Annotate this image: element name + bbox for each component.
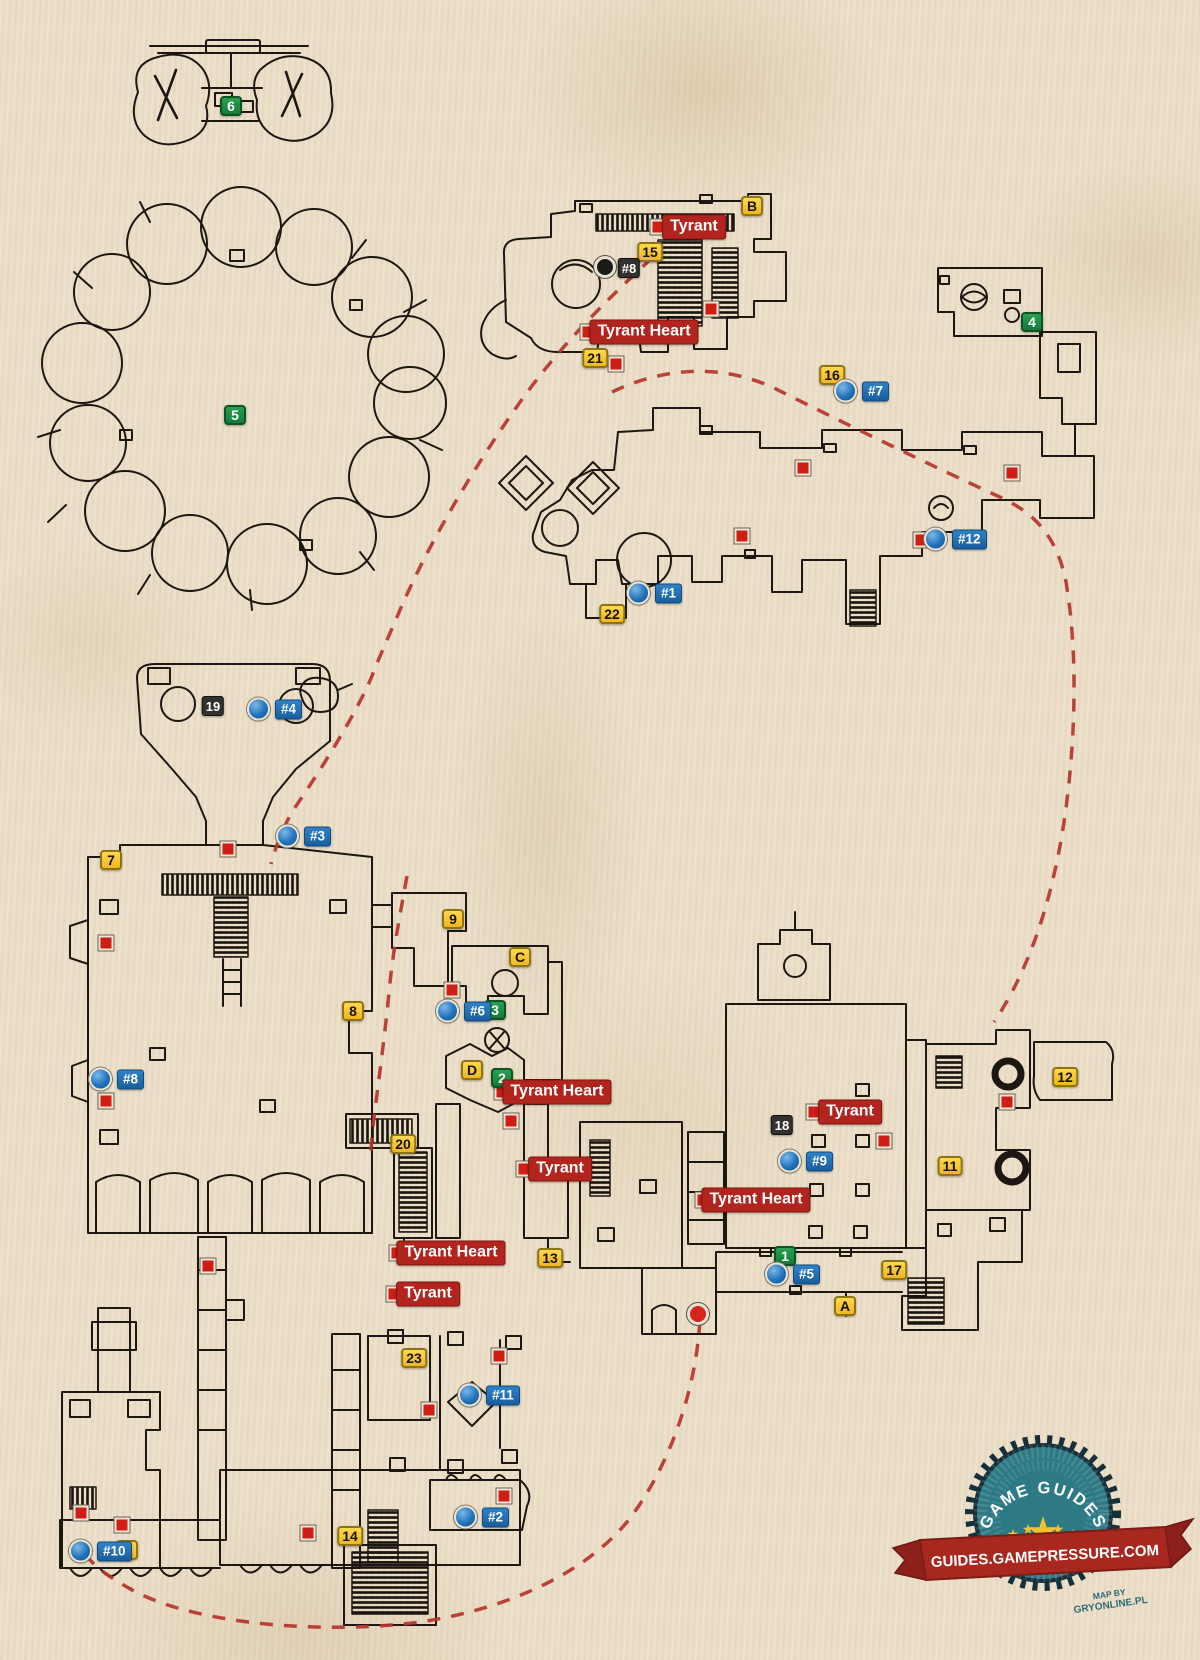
item-red-square-7 [221, 842, 236, 857]
exit-marker-A: A [834, 1296, 856, 1316]
area-marker-12: 12 [1052, 1067, 1078, 1087]
exit-marker-B: B [741, 196, 763, 216]
poi-label: #9 [806, 1151, 833, 1171]
blue-dot-icon [627, 582, 650, 605]
blue-dot-icon [454, 1506, 477, 1529]
item-red-square-19 [74, 1506, 89, 1521]
poi-label: #1 [655, 583, 682, 603]
green-marker-5: 5 [224, 405, 246, 425]
area-marker-7: 7 [100, 850, 122, 870]
item-red-square-16 [422, 1403, 437, 1418]
poi-7: #7 [834, 380, 889, 403]
black-marker-19: 19 [202, 696, 224, 716]
item-red-square-8 [99, 936, 114, 951]
map-image: 78911121314151617202122230ABCD1234561918… [0, 0, 1200, 1660]
poi-2: #2 [454, 1506, 509, 1529]
poi-label: #12 [952, 529, 987, 549]
area-marker-9: 9 [442, 909, 464, 929]
area-marker-21: 21 [582, 348, 608, 368]
item-red-square-10 [99, 1094, 114, 1109]
poi-label: #4 [275, 699, 302, 719]
poi-10: #10 [69, 1540, 132, 1563]
blue-dot-icon [69, 1540, 92, 1563]
blue-dot-icon [247, 698, 270, 721]
boss-label-6: Tyrant [396, 1282, 460, 1307]
area-marker-8: 8 [342, 1001, 364, 1021]
exit-marker-D: D [461, 1060, 483, 1080]
poi-label: #6 [464, 1001, 491, 1021]
item-red-square-20 [115, 1518, 130, 1533]
area-marker-13: 13 [537, 1248, 563, 1268]
poi-8: #8 [89, 1068, 144, 1091]
poi-6: #6 [436, 1000, 491, 1023]
area-marker-17: 17 [881, 1260, 907, 1280]
blue-dot-icon [924, 528, 947, 551]
area-marker-14: 14 [337, 1526, 363, 1546]
item-red-square-13 [877, 1134, 892, 1149]
boss-label-7: Tyrant [818, 1100, 882, 1125]
black-circle-marker [594, 256, 616, 278]
area-marker-11: 11 [938, 1156, 963, 1176]
gamepressure-badge: GAME GUIDES ★ ★ ★ ★ ★ ★ ★ GUIDES.GAMEPRE… [875, 1395, 1200, 1660]
blue-dot-icon [89, 1068, 112, 1091]
poi-12: #12 [924, 528, 987, 551]
area-marker-23: 23 [401, 1348, 427, 1368]
item-red-square-12 [1000, 1095, 1015, 1110]
area-marker-20: 20 [390, 1134, 416, 1154]
blue-dot-icon [765, 1263, 788, 1286]
item-red-square-4 [1005, 466, 1020, 481]
blue-dot-icon [276, 825, 299, 848]
poi-label: #5 [793, 1264, 820, 1284]
item-red-square-1 [704, 302, 719, 317]
blue-dot-icon [778, 1150, 801, 1173]
badge-credit: MAP BY GRYONLINE.PL [1072, 1584, 1149, 1616]
boss-label-5: Tyrant Heart [396, 1241, 505, 1266]
item-red-square-5 [735, 529, 750, 544]
boss-label-1: Tyrant [662, 215, 726, 240]
black-marker-18: 18 [771, 1115, 793, 1135]
blue-dot-icon [436, 1000, 459, 1023]
area-marker-22: 22 [599, 604, 625, 624]
poi-label: #8 [117, 1069, 144, 1089]
boss-label-8: Tyrant Heart [701, 1188, 810, 1213]
poi-label: #10 [97, 1541, 132, 1561]
item-red-square-18 [301, 1526, 316, 1541]
item-red-square-9 [445, 983, 460, 998]
poi-9: #9 [778, 1150, 833, 1173]
green-marker-4: 4 [1021, 312, 1043, 332]
poi-1: #1 [627, 582, 682, 605]
poi-label: #3 [304, 826, 331, 846]
area-marker-15: 15 [637, 242, 663, 262]
poi-5: #5 [765, 1263, 820, 1286]
exit-marker-C: C [509, 947, 531, 967]
poi-label: #7 [862, 381, 889, 401]
item-red-square-3 [796, 461, 811, 476]
green-marker-6: 6 [220, 96, 242, 116]
boss-label-2: Tyrant Heart [589, 320, 698, 345]
poi-label: #11 [486, 1385, 520, 1405]
black-marker-8: #8 [618, 258, 640, 278]
poi-11: #11 [458, 1384, 520, 1407]
boss-label-4: Tyrant [528, 1157, 592, 1182]
blue-dot-icon [458, 1384, 481, 1407]
poi-3: #3 [276, 825, 331, 848]
boss-label-3: Tyrant Heart [502, 1080, 611, 1105]
item-red-square-17 [497, 1489, 512, 1504]
item-red-square-2 [609, 357, 624, 372]
item-red-square-15 [492, 1349, 507, 1364]
poi-label: #2 [482, 1507, 509, 1527]
blue-dot-icon [834, 380, 857, 403]
item-red-square-11 [504, 1114, 519, 1129]
poi-4: #4 [247, 698, 302, 721]
red-circle-marker [687, 1303, 709, 1325]
item-red-square-14 [201, 1259, 216, 1274]
